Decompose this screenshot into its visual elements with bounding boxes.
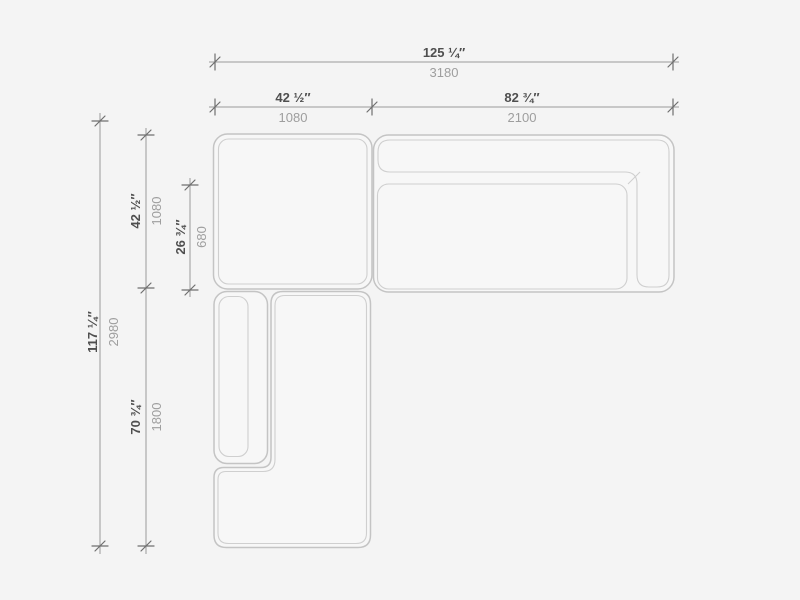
dim-seat-depth-mm-label: 680 bbox=[194, 226, 209, 248]
corner-module-outline bbox=[214, 134, 373, 289]
dim-overall-depth-mm-label: 2980 bbox=[106, 318, 121, 347]
dim-overall-width-inches-label: 125 ¼″ bbox=[423, 45, 465, 60]
dim-module-depths: 42 ½″ 1080 70 ¾″ 1800 bbox=[128, 128, 164, 554]
chaise-armrest bbox=[214, 292, 268, 464]
dim-seat-depth: 26 ¾″ 680 bbox=[173, 178, 209, 297]
dimension-drawing-canvas: 125 ¼″ 3180 42 ½″ 1080 82 ¾″ 2100 117 ¼″… bbox=[0, 0, 800, 600]
dim-chaise-length-mm-label: 1800 bbox=[149, 403, 164, 432]
dim-corner-module-width-mm-label: 1080 bbox=[279, 110, 308, 125]
dim-module-widths: 42 ½″ 1080 82 ¾″ 2100 bbox=[209, 90, 679, 125]
dim-sofa-width-inches-label: 82 ¾″ bbox=[504, 90, 539, 105]
right-sofa bbox=[374, 135, 675, 292]
corner-module bbox=[214, 134, 373, 289]
dim-corner-module-depth-inches-label: 42 ½″ bbox=[128, 193, 143, 228]
dim-overall-width-mm-label: 3180 bbox=[430, 65, 459, 80]
dim-chaise-length-inches-label: 70 ¾″ bbox=[128, 399, 143, 434]
dim-overall-depth: 117 ¼″ 2980 bbox=[85, 113, 121, 554]
dim-seat-depth-inches-label: 26 ¾″ bbox=[173, 219, 188, 254]
dim-overall-width: 125 ¼″ 3180 bbox=[209, 45, 679, 80]
dim-corner-module-width-inches-label: 42 ½″ bbox=[275, 90, 310, 105]
dim-sofa-width-mm-label: 2100 bbox=[508, 110, 537, 125]
dim-overall-depth-inches-label: 117 ¼″ bbox=[85, 311, 100, 353]
chaise-module bbox=[214, 292, 371, 548]
dim-corner-module-depth-mm-label: 1080 bbox=[149, 197, 164, 226]
sofa-shell bbox=[374, 135, 675, 292]
